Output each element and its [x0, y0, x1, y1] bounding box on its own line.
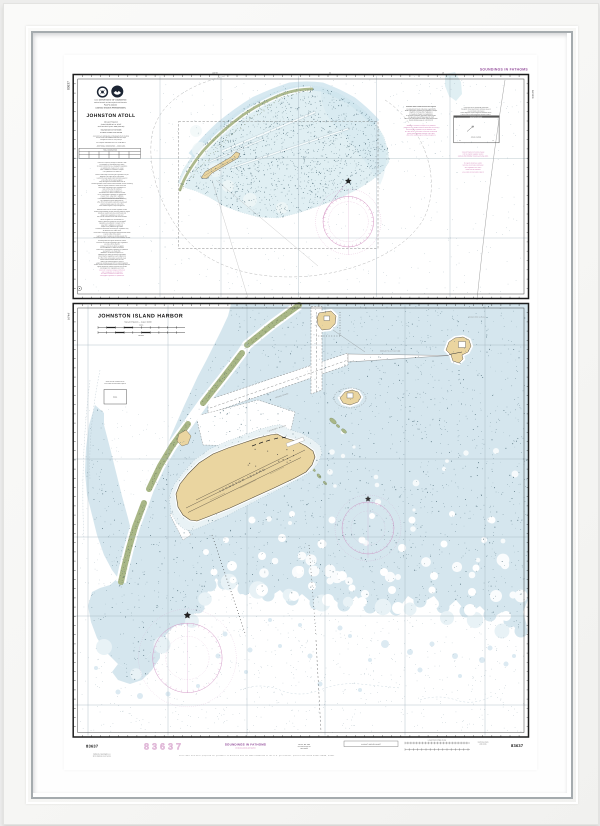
svg-text:Mercator Projection: Mercator Projection	[104, 120, 118, 123]
svg-text:exist danger zone regulations: exist danger zone regulations see note A	[100, 268, 124, 270]
svg-text:District Honolulu Hawaii or at: District Honolulu Hawaii or at the Offic…	[409, 119, 434, 121]
svg-text:zone regulations see note A: zone regulations see note A	[465, 167, 482, 169]
svg-text:A Navigation regulations are p: A Navigation regulations are published i…	[100, 275, 125, 277]
svg-text:in the Notice to Mariners info: in the Notice to Mariners information co…	[98, 198, 127, 200]
svg-text:obtained at the Office of the: obtained at the Office of the Commander	[100, 176, 125, 178]
svg-text:are published in Chapter 2 U.S: are published in Chapter 2 U.S. Coast	[101, 167, 124, 169]
svg-text:DANGER ZONES AND RESTRICTED AR: DANGER ZONES AND RESTRICTED AREAS	[406, 106, 436, 108]
svg-text:SOUNDINGS IN FATHOMS: SOUNDINGS IN FATHOMS	[225, 743, 266, 747]
svg-text:areas radio communication requ: areas radio communication required	[104, 383, 126, 385]
svg-text:0.1: 0.1	[459, 140, 461, 142]
svg-text:NOTE A Navigation regulations: NOTE A Navigation regulations are publis…	[98, 194, 127, 196]
svg-text:NAUTICAL MILES: NAUTICAL MILES	[478, 742, 489, 744]
svg-text:of Engineers and U.S. Navy sur: of Engineers and U.S. Navy surveys	[100, 139, 122, 141]
svg-text:AUTHORITIES Hydrography and to: AUTHORITIES Hydrography and topography b…	[93, 135, 130, 137]
svg-text:JOHNSTON ISLAND HARBOR: JOHNSTON ISLAND HARBOR	[98, 314, 183, 320]
svg-text:danger zone regulations see no: danger zone regulations see note A of	[101, 214, 124, 216]
svg-text:169°35': 169°35'	[212, 72, 218, 75]
svg-text:or defects in aids to navigati: or defects in aids to navigation are	[102, 190, 123, 192]
svg-text:aids to navigation are not ind: aids to navigation are not indicated see	[100, 219, 124, 221]
svg-text:coral heads exist danger zone: coral heads exist danger zone regulation…	[98, 187, 126, 189]
svg-text:regulations are published in C: regulations are published in Chapter 2 U…	[99, 223, 125, 225]
svg-text:2 are published in the Notice: 2 are published in the Notice to	[103, 171, 122, 173]
svg-text:are not indicated see Notice t: are not indicated see Notice to Mariners	[100, 247, 124, 249]
svg-text:to charted regulation section: to charted regulation section numbers AN…	[94, 237, 131, 239]
svg-text:published in the Notice to Mar: published in the Notice to Mariners info…	[404, 127, 439, 129]
svg-text:to navigation are not indicate: to navigation are not indicated see Noti…	[100, 164, 125, 166]
svg-text:additions or revisions to Chap: additions or revisions to Chapter 2 are …	[407, 125, 436, 127]
svg-text:ADDITIONAL INFORMATION — RADI: ADDITIONAL INFORMATION — RADIO AIDS	[97, 145, 126, 147]
svg-text:DREDGED TO 23 FT JULY 1999: DREDGED TO 23 FT JULY 1999	[380, 351, 401, 353]
svg-text:lagoon should use caution nume: lagoon should use caution numerous coral…	[97, 266, 127, 268]
svg-text:Office of the District Enginee: Office of the District Engineer Corps of	[101, 261, 125, 263]
svg-text:changes or defects in aids to: changes or defects in aids to navigation	[100, 245, 124, 247]
svg-text:areas radio communication requ: areas radio communication required	[462, 171, 484, 173]
svg-text:the Office of the Commander Fo: the Office of the Commander Fourteenth C…	[405, 131, 437, 133]
svg-text:UNITED STATES POSSESSION: UNITED STATES POSSESSION	[95, 107, 126, 110]
svg-text:TIDAL INFORMATION: TIDAL INFORMATION	[103, 150, 117, 152]
svg-text:of the District Engineer Corps: of the District Engineer Corps of Engine…	[99, 205, 125, 207]
svg-text:Ocean Service with additional: Ocean Service with additional data from …	[96, 137, 126, 139]
svg-text:83637: 83637	[86, 744, 99, 749]
svg-text:CAUTION Temporary changes or d: CAUTION Temporary changes or defects in …	[98, 162, 127, 164]
svg-text:Commander Fourteenth Coast Gua: Commander Fourteenth Coast Guard Distric…	[94, 232, 132, 234]
svg-text:AT MEAN LOWER LOW WATER: AT MEAN LOWER LOW WATER	[235, 747, 255, 749]
svg-text:Guard District Honolulu Hawaii: Guard District Honolulu Hawaii or at the…	[407, 133, 435, 135]
svg-text:For complete information see U: For complete information see U.S. Coast …	[96, 142, 126, 144]
svg-text:83637: 83637	[67, 81, 71, 90]
svg-text:this chart for restricted area: this chart for restricted areas radio co…	[97, 216, 127, 218]
svg-text:see Notice to Mariners Limited: see Notice to Mariners Limited NOTE	[101, 273, 123, 275]
svg-text:Notice to Mariners Limited NOT: Notice to Mariners Limited NOTE A Naviga…	[98, 221, 126, 223]
svg-text:to Mariners information concer: to Mariners information concerning the r…	[96, 228, 129, 230]
svg-text:LOGARITHMIC SPEED SCALE: LOGARITHMIC SPEED SCALE	[428, 740, 447, 742]
svg-text:to Mariners Limited NOTE A Nav: to Mariners Limited NOTE A Navigation re…	[97, 166, 128, 168]
svg-text:Fourteenth Coast Guard Distric: Fourteenth Coast Guard District Honolulu…	[97, 178, 128, 180]
svg-text:Chapter 2 are published in the: Chapter 2 are published in the Notice	[101, 226, 123, 228]
svg-text:numerous coral heads exist dan: numerous coral heads exist danger zone r…	[96, 242, 128, 244]
svg-text:concerning the regulations may: concerning the regulations may be obtain…	[406, 129, 436, 131]
svg-text:refer to charted regulation se: refer to charted regulation section	[463, 154, 484, 156]
svg-text:at the Office of the Commander: at the Office of the Commander Fourteent…	[464, 107, 489, 109]
svg-text:Fourteenth Coast Guard Distric: Fourteenth Coast Guard District Honolulu…	[461, 109, 491, 111]
svg-text:be obtained at the Office of t: be obtained at the Office of the	[103, 230, 122, 232]
svg-text:of this chart for restricted: of this chart for restricted	[466, 169, 481, 171]
svg-text:DANGER ZONE see note A: DANGER ZONE see note A	[468, 317, 485, 319]
svg-text:of this chart for restricted a: of this chart for restricted areas	[106, 381, 125, 383]
svg-text:METERS: METERS	[138, 335, 144, 337]
svg-text:anchoring within the lagoon sh: anchoring within the lagoon should use c…	[98, 240, 126, 242]
svg-text:charted regulation section num: charted regulation section numbers ANCHO…	[91, 183, 132, 185]
svg-text:Office of the District Enginee: Office of the District Engineer Corps of…	[406, 135, 436, 137]
svg-text:Office of the Commander Fourte: Office of the Commander Fourteenth Coast…	[97, 202, 127, 204]
svg-text:This chart has been prepared f: This chart has been prepared for guidanc…	[179, 755, 334, 757]
svg-text:Published at Washington D.C.: Published at Washington D.C.	[93, 754, 112, 756]
svg-text:SOUNDINGS IN FATHOMS: SOUNDINGS IN FATHOMS	[480, 68, 529, 72]
svg-text:14: 14	[492, 140, 494, 142]
svg-text:Mariners information concernin: Mariners information concerning the regu…	[95, 174, 128, 176]
svg-text:16°44': 16°44'	[68, 312, 71, 320]
svg-text:JOHNSTON ATOLL: JOHNSTON ATOLL	[86, 113, 135, 119]
svg-text:Corps of Engineers Honolulu Ha: Corps of Engineers Honolulu Hawaii	[462, 152, 485, 154]
svg-text:CAUTION Temporary changes or d: CAUTION Temporary changes or defects in	[99, 270, 125, 272]
svg-text:aids to navigation are not ind: aids to navigation are not indicated	[102, 271, 123, 273]
svg-text:section numbers ANCHORAGE Vess: section numbers ANCHORAGE Vessels anchor…	[94, 264, 130, 266]
svg-text:Pilot 7 additions or revisions: Pilot 7 additions or revisions to Chapte…	[100, 169, 124, 171]
svg-text:SOUNDINGS IN FATHOMS: SOUNDINGS IN FATHOMS	[101, 129, 123, 132]
svg-text:within the lagoon should use c: within the lagoon should use caution num…	[98, 185, 126, 187]
svg-text:note A of this chart for restr: note A of this chart for restricted	[103, 189, 122, 191]
svg-text:YARDS: YARDS	[139, 325, 144, 327]
svg-text:16°45'N: 16°45'N	[531, 90, 534, 99]
svg-text:the lagoon should use caution: the lagoon should use caution	[464, 163, 482, 165]
svg-text:Corps of Engineers Honolulu Ha: Corps of Engineers Honolulu Hawaii refer…	[99, 181, 125, 183]
svg-text:numerous coral heads exist dan: numerous coral heads exist danger	[463, 165, 485, 167]
svg-text:should use caution numerous co: should use caution numerous coral heads …	[98, 213, 127, 215]
svg-text:by the National Ocean Service: by the National Ocean Service	[93, 756, 111, 758]
svg-text:numbers ANCHORAGE Vessels anch: numbers ANCHORAGE Vessels anchoring with…	[458, 156, 489, 158]
svg-text:at the Office of the District: at the Office of the District Engineer	[101, 179, 123, 181]
svg-text:14th Ed., Mar. 2010: 14th Ed., Mar. 2010	[298, 744, 310, 746]
svg-text:Engineer Corps of Engineers Ho: Engineer Corps of Engineers Honolulu Haw…	[97, 235, 128, 237]
svg-text:Chapter 2 U.S. Coast Pilot 7 a: Chapter 2 U.S. Coast Pilot 7 additions	[101, 196, 124, 198]
svg-text:U.S. DEPARTMENT OF COMMERCE: U.S. DEPARTMENT OF COMMERCE	[95, 98, 128, 101]
svg-text:83637: 83637	[511, 743, 524, 748]
svg-text:or at the Office of the Distri: or at the Office of the District	[468, 110, 485, 112]
svg-text:LNM 12/2012: LNM 12/2012	[300, 748, 308, 750]
svg-text:published in the Notice to Mar: published in the Notice to Mariners info…	[98, 254, 126, 256]
svg-text:the Office of the Commander Fo: the Office of the Commander Fourteenth C…	[98, 257, 127, 259]
svg-text:Corrected through NM: Corrected through NM	[298, 746, 311, 748]
svg-text:NOAA: NOAA	[113, 396, 117, 399]
svg-text:concerning the regulations may: concerning the regulations may be obtain…	[98, 256, 126, 258]
svg-text:see note A of this chart for: see note A of this chart for	[104, 244, 120, 246]
svg-text:Limited NOTE A Navigation regu: Limited NOTE A Navigation regulations ar…	[96, 249, 128, 251]
svg-text:District Honolulu Hawaii or at: District Honolulu Hawaii or at the Offic…	[100, 203, 124, 205]
svg-text:additions or revisions to Chap: additions or revisions to Chapter 2 are	[101, 252, 124, 254]
svg-text:PACIFIC OCEAN: PACIFIC OCEAN	[104, 103, 118, 106]
svg-text:Mercator Projection — Scale 1:: Mercator Projection — Scale 1:10,000	[125, 321, 152, 324]
svg-text:Honolulu Hawaii refer to chart: Honolulu Hawaii refer to charted regulat…	[97, 209, 127, 211]
svg-text:83637: 83637	[144, 742, 184, 752]
svg-text:ANNUAL CHANGE: ANNUAL CHANGE	[471, 137, 481, 139]
svg-text:2000 YARDS: 2000 YARDS	[480, 744, 487, 746]
svg-text:Coast Pilot 7 additions or rev: Coast Pilot 7 additions or revisions to	[101, 224, 123, 226]
svg-text:or at the Office of the Distri: or at the Office of the District	[103, 234, 121, 236]
svg-text:the regulations may be obtaine: the regulations may be obtained at the	[101, 200, 124, 202]
svg-text:Guard District Honolulu Hawaii: Guard District Honolulu Hawaii or at the	[100, 259, 124, 261]
svg-text:numbers ANCHORAGE Vessels anch: numbers ANCHORAGE Vessels anchoring with…	[94, 211, 130, 213]
svg-text:District Engineer Corps of Eng: District Engineer Corps of Engineers Hon…	[461, 112, 492, 114]
svg-text:not indicated see Notice to Ma: not indicated see Notice to Mariners Lim…	[99, 192, 125, 194]
svg-text:MAGNETIC DIAGRAM: MAGNETIC DIAGRAM	[470, 116, 482, 118]
